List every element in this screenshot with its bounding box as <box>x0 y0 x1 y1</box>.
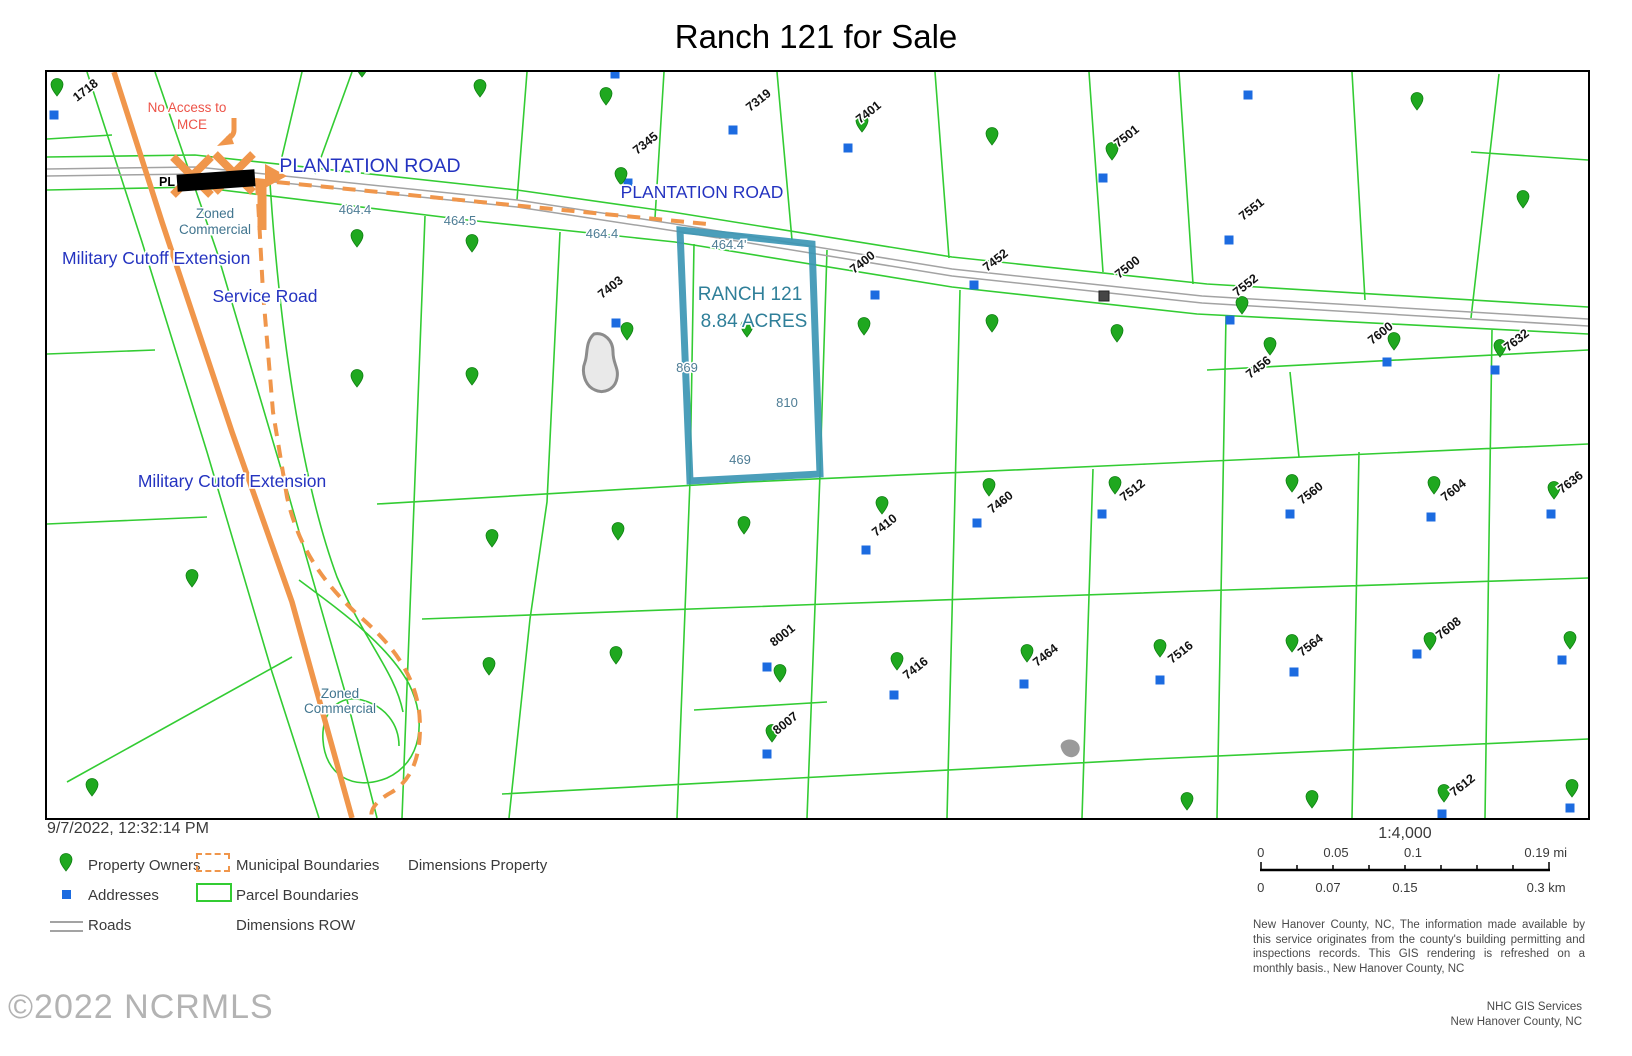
property-owner-marker <box>610 647 622 665</box>
parcel-number-label: 7456 <box>1243 353 1274 381</box>
gis-map: PL 1718734573197401750175517403740074527… <box>47 72 1588 818</box>
property-owner-marker <box>466 368 478 386</box>
address-marker <box>1290 668 1299 677</box>
property-owner-marker <box>1428 477 1440 495</box>
parcel-number-label: 7608 <box>1433 614 1464 642</box>
ranch-121-highlight <box>680 230 820 481</box>
address-marker-dark <box>1099 291 1109 301</box>
small-pond <box>1061 739 1080 757</box>
address-marker <box>1547 510 1556 519</box>
address-marker <box>1427 513 1436 522</box>
plantation-road-label-2: PLANTATION ROAD <box>621 182 784 202</box>
ranch-acreage-label: 8.84 ACRES <box>701 311 808 332</box>
address-marker <box>1413 650 1422 659</box>
copyright-watermark: ©2022 NCRMLS <box>8 988 274 1027</box>
property-owner-marker <box>486 530 498 548</box>
redacted-road-prefix: PL <box>159 175 175 189</box>
address-marker <box>1244 91 1253 100</box>
parcel-number-label: 7552 <box>1230 271 1261 299</box>
parcel-number-label: 7452 <box>980 246 1011 274</box>
property-owner-marker <box>1517 191 1529 209</box>
address-marker <box>970 281 979 290</box>
property-owner-marker <box>983 479 995 497</box>
municipal-boundaries-icon <box>196 853 230 872</box>
address-marker <box>871 291 880 300</box>
parcel-number-label: 8001 <box>767 621 798 649</box>
property-owner-marker <box>1181 793 1193 811</box>
address-marker <box>1226 316 1235 325</box>
address-marker <box>1286 510 1295 519</box>
address-marker <box>1225 236 1234 245</box>
property-owner-marker <box>621 323 633 341</box>
property-owner-marker <box>876 497 888 515</box>
dimension-labels-layer: 464.4464.5464.4464.4'869810469 <box>339 202 798 467</box>
loop-road <box>299 580 419 783</box>
zoned-commercial-2-line1: Zoned <box>321 686 359 701</box>
km-tick-3: 0.3 km <box>1527 880 1566 895</box>
parcel-number-label: 7612 <box>1447 771 1478 799</box>
scale-miles-labels: 0 0.05 0.1 0.19 mi <box>1260 845 1550 859</box>
parcel-number-label: 7345 <box>630 129 661 157</box>
map-timestamp: 9/7/2022, 12:32:14 PM <box>47 820 209 838</box>
property-owners-icon <box>58 853 74 873</box>
parcel-number-label: 7564 <box>1295 631 1326 659</box>
parcel-number-label: 7560 <box>1295 479 1326 507</box>
property-owner-marker <box>351 230 363 248</box>
km-tick-1: 0.07 <box>1315 880 1340 895</box>
property-owner-marker <box>1306 791 1318 809</box>
property-owner-marker <box>1154 640 1166 658</box>
legend-dimensions-property: Dimensions Property <box>408 857 547 874</box>
service-road-label: Service Road <box>212 286 317 306</box>
property-owner-marker <box>1424 633 1436 651</box>
mi-tick-2: 0.1 <box>1404 845 1422 860</box>
dimension-label: 810 <box>776 395 798 410</box>
parcel-number-label: 7636 <box>1555 468 1586 496</box>
municipal-boundary-south <box>257 182 420 818</box>
parcel-number-label: 7516 <box>1165 638 1196 666</box>
pond <box>583 334 617 392</box>
property-owner-marker <box>1564 632 1576 650</box>
property-owner-marker <box>356 72 368 77</box>
legend-property-owners: Property Owners <box>88 857 201 874</box>
legend-addresses: Addresses <box>88 887 159 904</box>
km-tick-2: 0.15 <box>1392 880 1417 895</box>
property-owner-marker <box>186 570 198 588</box>
address-marker <box>844 144 853 153</box>
address-marker <box>1558 656 1567 665</box>
property-owner-marker <box>858 318 870 336</box>
legend-municipal-boundaries: Municipal Boundaries <box>236 857 379 874</box>
property-owner-marker <box>51 79 63 97</box>
roads-icon <box>50 921 83 932</box>
no-access-label-line1: No Access to <box>148 100 227 115</box>
property-owner-marker <box>1388 333 1400 351</box>
military-cutoff-label-2: Military Cutoff Extension <box>138 471 326 491</box>
dimension-label: 464.4 <box>586 226 619 241</box>
zoned-commercial-1-line2: Commercial <box>179 222 251 237</box>
parcel-number-label: 7401 <box>853 98 884 126</box>
address-marker <box>763 663 772 672</box>
property-owner-marker <box>774 665 786 683</box>
address-marker <box>729 126 738 135</box>
address-marker <box>890 691 899 700</box>
dimension-label: 464.5 <box>444 213 477 228</box>
zoned-commercial-2-line2: Commercial <box>304 701 376 716</box>
property-owner-marker <box>466 235 478 253</box>
address-marker <box>862 546 871 555</box>
scale-bar <box>1260 862 1550 876</box>
legend-dimensions-row: Dimensions ROW <box>236 917 355 934</box>
military-cutoff-label-1: Military Cutoff Extension <box>62 248 250 268</box>
property-owner-marker <box>483 658 495 676</box>
parcel-number-label: 7410 <box>869 511 900 539</box>
address-marker <box>611 72 620 79</box>
gis-credit: NHC GIS Services New Hanover County, NC <box>1451 1000 1582 1030</box>
property-owner-marker <box>474 80 486 98</box>
parcel-number-label: 7403 <box>595 273 626 301</box>
gis-credit-line2: New Hanover County, NC <box>1451 1015 1582 1030</box>
property-owner-marker <box>738 517 750 535</box>
property-owner-marker <box>351 370 363 388</box>
gis-credit-line1: NHC GIS Services <box>1451 1000 1582 1015</box>
no-access-label-line2: MCE <box>177 117 207 132</box>
address-marker <box>1438 810 1447 819</box>
mi-tick-1: 0.05 <box>1323 845 1348 860</box>
mce-arrow-icon <box>217 118 234 146</box>
address-marker <box>973 519 982 528</box>
zoned-commercial-1-line1: Zoned <box>196 206 234 221</box>
property-owner-marker <box>1566 780 1578 798</box>
page-title: Ranch 121 for Sale <box>0 18 1632 56</box>
address-marker <box>1383 358 1392 367</box>
address-marker <box>1098 510 1107 519</box>
disclaimer-text: New Hanover County, NC, The information … <box>1253 918 1585 977</box>
parcel-number-label: 7319 <box>743 86 774 114</box>
address-marker <box>763 750 772 759</box>
parcel-number-label: 7551 <box>1236 195 1267 223</box>
parcel-number-label: 7604 <box>1438 476 1469 504</box>
property-owner-marker <box>600 88 612 106</box>
parcel-number-label: 7416 <box>900 654 931 682</box>
parcel-number-label: 7501 <box>1111 122 1142 150</box>
parcel-number-label: 8007 <box>770 709 801 737</box>
address-marker <box>50 111 59 120</box>
map-canvas: PL 1718734573197401750175517403740074527… <box>45 70 1590 820</box>
property-owner-marker <box>1264 338 1276 356</box>
address-marker <box>1099 174 1108 183</box>
property-owner-marker <box>1411 93 1423 111</box>
parcel-number-label: 7512 <box>1117 476 1148 504</box>
address-marker <box>1156 676 1165 685</box>
scale-ratio: 1:4,000 <box>1260 825 1550 843</box>
ranch-name-label: RANCH 121 <box>698 284 803 305</box>
property-owner-marker <box>1286 475 1298 493</box>
legend-roads: Roads <box>88 917 131 934</box>
property-owner-marker <box>1111 325 1123 343</box>
addresses-icon <box>62 890 71 899</box>
legend-parcel-boundaries: Parcel Boundaries <box>236 887 359 904</box>
address-marker <box>612 319 621 328</box>
property-owner-marker <box>86 779 98 797</box>
property-owner-marker <box>891 653 903 671</box>
parcel-number-label: 7464 <box>1030 641 1061 669</box>
dimension-label: 464.4' <box>711 237 746 252</box>
address-marker <box>1020 680 1029 689</box>
dimension-label: 469 <box>729 452 751 467</box>
mi-tick-0: 0 <box>1257 845 1264 860</box>
dimension-label: 869 <box>676 360 698 375</box>
parcel-boundaries-icon <box>196 883 232 902</box>
dimension-label: 464.4 <box>339 202 372 217</box>
scale-km-labels: 0 0.07 0.15 0.3 km <box>1260 880 1550 894</box>
plantation-road-label-1: PLANTATION ROAD <box>279 155 460 177</box>
property-owner-marker <box>986 128 998 146</box>
address-marker <box>1491 366 1500 375</box>
address-marker <box>1566 804 1575 813</box>
property-owner-marker <box>986 315 998 333</box>
mi-tick-3: 0.19 mi <box>1524 845 1567 860</box>
km-tick-0: 0 <box>1257 880 1264 895</box>
property-owner-marker <box>612 523 624 541</box>
